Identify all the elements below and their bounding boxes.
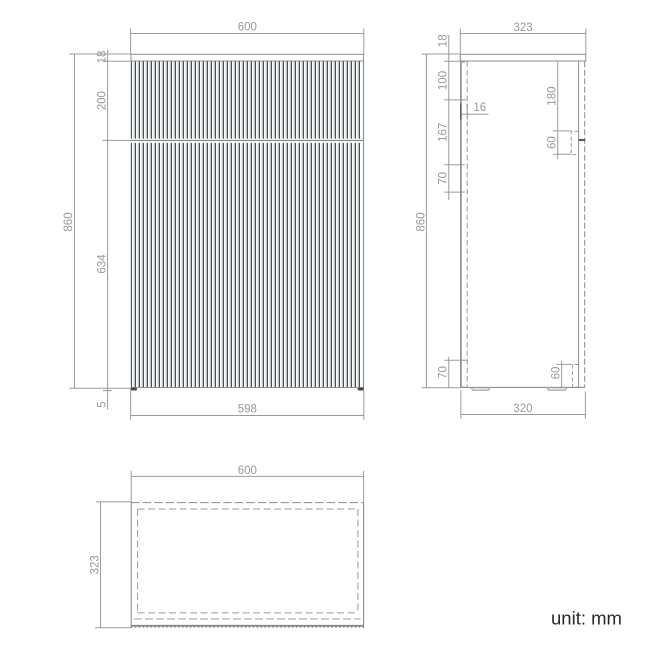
svg-text:200: 200 [97, 91, 109, 110]
svg-text:60: 60 [550, 367, 562, 380]
svg-text:70: 70 [438, 366, 450, 379]
svg-text:598: 598 [238, 404, 257, 416]
svg-text:unit: mm: unit: mm [551, 608, 622, 629]
svg-text:60: 60 [547, 136, 559, 149]
svg-text:323: 323 [90, 555, 102, 574]
svg-text:5: 5 [97, 401, 109, 407]
svg-text:323: 323 [513, 22, 532, 34]
svg-text:180: 180 [547, 87, 559, 106]
svg-text:860: 860 [63, 212, 75, 231]
svg-text:600: 600 [238, 465, 257, 477]
svg-text:100: 100 [437, 71, 449, 90]
svg-text:167: 167 [437, 123, 449, 142]
svg-text:18: 18 [437, 34, 449, 47]
svg-text:860: 860 [415, 212, 427, 231]
svg-text:70: 70 [437, 172, 449, 185]
svg-text:320: 320 [513, 403, 532, 415]
svg-text:634: 634 [97, 254, 109, 274]
svg-text:18: 18 [97, 51, 109, 64]
svg-text:16: 16 [473, 102, 486, 114]
svg-text:600: 600 [238, 22, 257, 34]
